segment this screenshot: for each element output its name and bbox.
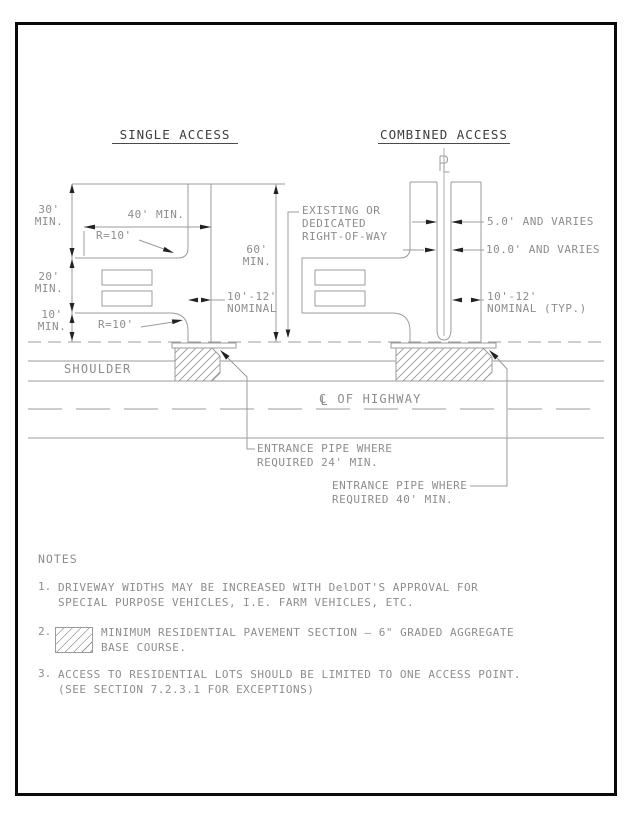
entrance-apron-combined [391, 343, 496, 381]
hatch-legend-swatch [55, 627, 93, 653]
dim-5-varies-label: 5.0' AND VARIES [487, 216, 594, 228]
pavement-marking-rect [315, 270, 365, 285]
pipe-strip [172, 343, 236, 348]
single-access-title: SINGLE ACCESS [112, 127, 238, 144]
combined-access-title: COMBINED ACCESS [378, 127, 510, 144]
right-of-way-leader [286, 212, 299, 338]
property-line-symbol [440, 156, 450, 172]
pavement-marking-rect [102, 270, 152, 285]
radius-10-bottom-label: R=10' [98, 319, 134, 331]
combined-access-arrowheads [425, 220, 481, 303]
right-of-way-label: EXISTING OR DEDICATED RIGHT-OF-WAY [302, 204, 387, 243]
driveway-width-label-single: 10'-12' NOMINAL [227, 291, 277, 315]
shoulder-label: SHOULDER [64, 363, 131, 375]
pipe-strip [391, 343, 496, 348]
dim-60-min-label: 60' MIN. [238, 244, 276, 268]
combined-access-drawing [302, 148, 481, 343]
notes-header: NOTES [38, 552, 78, 566]
dim-10-min-label: 10' MIN. [33, 309, 71, 333]
hatched-apron [396, 348, 492, 381]
centerline-of-highway-label: CL OF HIGHWAY [319, 393, 422, 405]
entrance-apron-single [172, 343, 236, 381]
radius-10-top-label: R=10' [96, 230, 132, 242]
hatched-apron [175, 348, 220, 381]
dim-30-min-label: 30' MIN. [30, 204, 68, 228]
dim-40-min-label: 40' MIN. [106, 209, 206, 221]
dim-10-varies-label: 10.0' AND VARIES [486, 244, 600, 256]
combined-access-dimensions [403, 222, 484, 300]
leader-pipe-24 [220, 350, 255, 449]
centerline-symbol: CL [319, 392, 329, 406]
entrance-pipe-40-label: ENTRANCE PIPE WHERE REQUIRED 40' MIN. [332, 479, 467, 507]
driveway-width-label-combined: 10'-12' NOMINAL (TYP.) [487, 291, 587, 315]
pavement-marking-rect [102, 291, 152, 306]
radius-bottom-leader [141, 322, 173, 327]
driveway-left-edge [75, 184, 188, 258]
drawing-sheet: SINGLE ACCESS COMBINED ACCESS 30' MIN. 2… [0, 0, 629, 816]
highway-lines [28, 342, 604, 438]
radius-top-leader [139, 240, 164, 249]
dim-20-min-label: 20' MIN. [30, 271, 68, 295]
entrance-pipe-24-label: ENTRANCE PIPE WHERE REQUIRED 24' MIN. [257, 442, 392, 470]
pavement-marking-rect [315, 291, 365, 306]
